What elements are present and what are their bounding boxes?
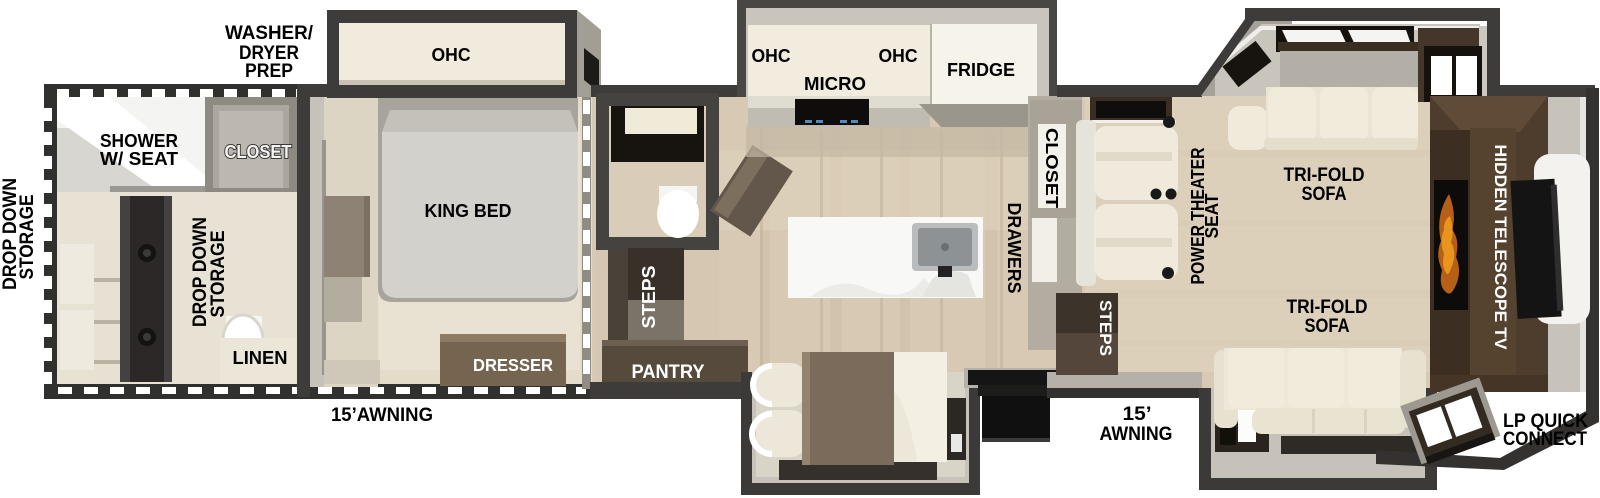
svg-text:CLOSET: CLOSET (225, 142, 292, 162)
svg-text:SEAT: SEAT (1202, 193, 1222, 238)
svg-text:15’AWNING: 15’AWNING (331, 405, 433, 426)
svg-text:WASHER/: WASHER/ (225, 23, 314, 44)
svg-text:15’: 15’ (1123, 404, 1152, 425)
svg-text:STEPS: STEPS (1096, 300, 1114, 356)
svg-text:CONNECT: CONNECT (1503, 429, 1587, 450)
svg-text:SOFA: SOFA (1302, 183, 1347, 205)
svg-text:W/ SEAT: W/ SEAT (100, 149, 178, 169)
svg-text:AWNING: AWNING (1100, 424, 1173, 445)
svg-text:SOFA: SOFA (1305, 315, 1350, 337)
svg-text:FRIDGE: FRIDGE (947, 60, 1015, 80)
svg-text:OHC: OHC (879, 46, 918, 66)
svg-text:STORAGE: STORAGE (17, 195, 38, 280)
svg-text:DRESSER: DRESSER (473, 355, 553, 375)
svg-text:STEPS: STEPS (639, 266, 659, 329)
svg-text:STORAGE: STORAGE (208, 231, 229, 318)
svg-text:MICRO: MICRO (804, 74, 866, 94)
svg-text:KING BED: KING BED (425, 200, 512, 221)
svg-text:OHC: OHC (432, 45, 471, 65)
svg-text:PANTRY: PANTRY (632, 361, 705, 383)
svg-text:PREP: PREP (245, 61, 293, 82)
svg-text:CLOSET: CLOSET (1042, 128, 1062, 208)
svg-text:HIDDEN TELESCOPE TV: HIDDEN TELESCOPE TV (1491, 145, 1510, 351)
svg-text:DRAWERS: DRAWERS (1004, 203, 1024, 294)
svg-text:LINEN: LINEN (233, 348, 288, 368)
svg-text:SHOWER: SHOWER (100, 131, 178, 151)
svg-text:OHC: OHC (752, 46, 791, 66)
